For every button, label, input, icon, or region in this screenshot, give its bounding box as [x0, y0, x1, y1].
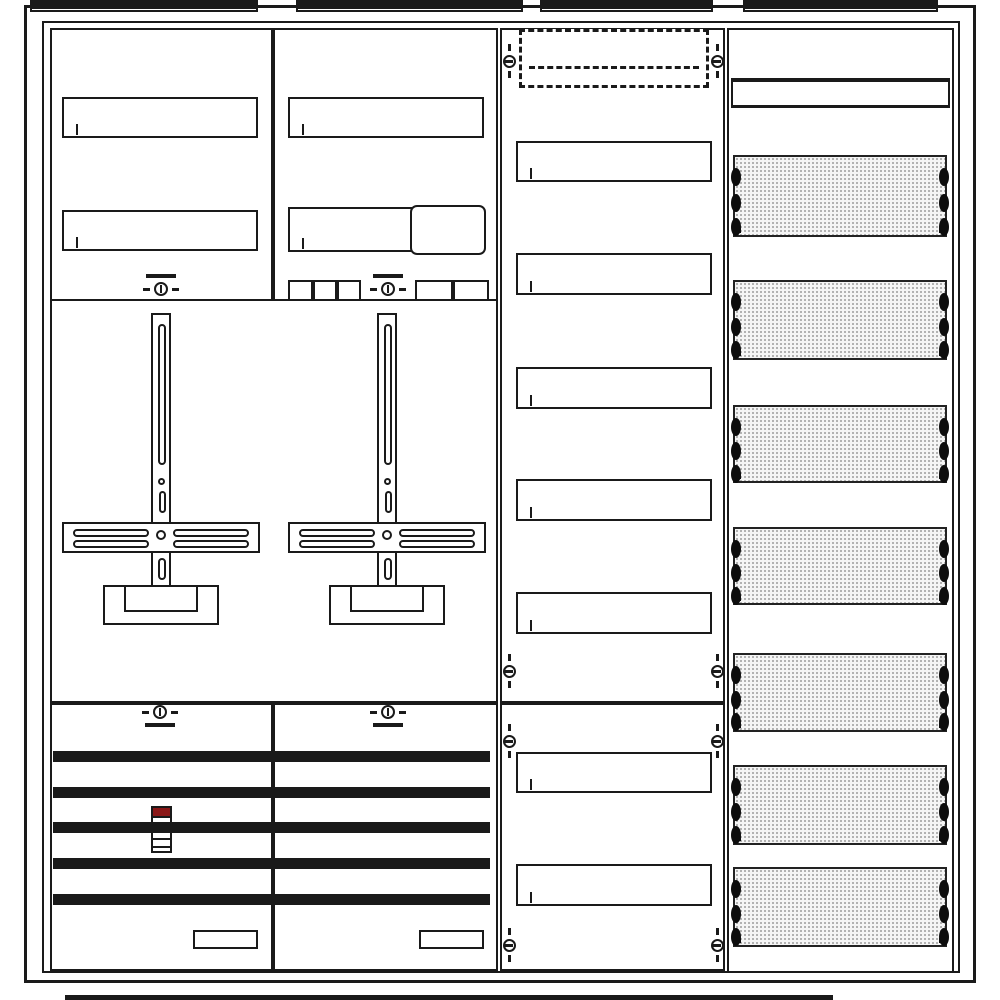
- plate-corner-dot: [939, 351, 944, 356]
- column3-lower-panel: [500, 703, 725, 971]
- screw-dash: [716, 44, 719, 51]
- plate-screw-icon: [939, 778, 949, 796]
- din-rail: [516, 367, 712, 409]
- seal-dash: [399, 711, 406, 714]
- tick-mark: [76, 124, 78, 135]
- busbar: [53, 787, 490, 798]
- plate-corner-dot: [939, 723, 944, 728]
- busbar: [53, 894, 490, 905]
- plate-screw-icon: [731, 293, 741, 311]
- perforated-cover-plate: [733, 155, 947, 237]
- plate-corner-dot: [736, 938, 741, 943]
- perforated-cover-plate: [733, 527, 947, 605]
- seal-bar: [145, 723, 175, 727]
- horizontal-slot: [399, 529, 475, 537]
- busbar: [53, 822, 490, 833]
- din-rail: [516, 592, 712, 634]
- screw-dash: [716, 681, 719, 688]
- plate-corner-dot: [736, 228, 741, 233]
- top-mounting-bracket: [540, 0, 713, 7]
- blank-cover-strip: [731, 78, 950, 108]
- top-mounting-bracket-lip: [743, 7, 938, 12]
- sls-switch-block: [410, 205, 486, 255]
- din-rail: [288, 97, 484, 138]
- screw-dash: [508, 44, 511, 51]
- plate-screw-icon: [731, 194, 741, 212]
- top-mounting-bracket-lip: [540, 7, 713, 12]
- top-mounting-bracket: [296, 0, 523, 7]
- sls-body-line: [153, 838, 170, 840]
- tick-mark: [302, 238, 304, 249]
- din-rail: [288, 207, 428, 252]
- tick-mark: [302, 124, 304, 135]
- plate-screw-icon: [731, 442, 741, 460]
- horizontal-slot: [299, 540, 375, 548]
- plate-corner-dot: [736, 596, 741, 601]
- plate-corner-dot: [939, 836, 944, 841]
- plate-screw-icon: [939, 540, 949, 558]
- seal-dash: [142, 711, 149, 714]
- terminal-strip: [419, 930, 484, 949]
- plate-screw-icon: [939, 293, 949, 311]
- plate-screw-icon: [939, 880, 949, 898]
- din-rail-ticks: [530, 892, 698, 903]
- plate-screw-icon: [731, 928, 741, 946]
- seal-bar: [146, 274, 176, 278]
- plate-screw-icon: [731, 826, 741, 844]
- tick-mark: [530, 395, 532, 406]
- vertical-slot-lower: [158, 558, 166, 580]
- seal-screw-slot: [160, 285, 162, 293]
- plate-screw-icon: [731, 666, 741, 684]
- tick-mark: [530, 507, 532, 518]
- plate-screw-icon: [939, 318, 949, 336]
- meter-cross-foot-inner: [350, 585, 424, 612]
- din-rail-ticks: [302, 124, 470, 135]
- din-rail-ticks: [530, 620, 698, 631]
- top-mounting-bracket: [30, 0, 258, 7]
- din-rail-ticks: [530, 168, 698, 179]
- plate-screw-icon: [731, 564, 741, 582]
- busbar: [53, 858, 490, 869]
- top-mounting-bracket-lip: [296, 7, 523, 12]
- din-rail: [516, 752, 712, 793]
- plate-corner-dot: [939, 938, 944, 943]
- plate-screw-icon: [939, 564, 949, 582]
- terminal-strip: [193, 930, 258, 949]
- seal-dash: [143, 288, 150, 291]
- plate-screw-icon: [731, 540, 741, 558]
- screw-dash: [716, 955, 719, 962]
- seal-screw-slot: [387, 285, 389, 293]
- seal-screw-slot: [159, 708, 161, 716]
- fixing-screw-slot: [713, 944, 721, 947]
- center-hole: [156, 530, 166, 540]
- seal-dash: [370, 711, 377, 714]
- screw-dash: [716, 928, 719, 935]
- plate-screw-icon: [939, 928, 949, 946]
- tick-mark: [530, 779, 532, 790]
- plate-screw-icon: [731, 341, 741, 359]
- screw-dash: [508, 724, 511, 731]
- screw-dash: [508, 681, 511, 688]
- vertical-slot: [158, 324, 166, 465]
- plate-screw-icon: [731, 880, 741, 898]
- plate-screw-icon: [731, 778, 741, 796]
- din-rail-ticks: [302, 238, 414, 249]
- din-rail: [516, 253, 712, 295]
- fixing-screw-slot: [713, 740, 721, 743]
- panel-top-left: [50, 28, 273, 301]
- fuse-box: [313, 280, 337, 301]
- plate-screw-icon: [731, 168, 741, 186]
- perforated-cover-plate: [733, 405, 947, 483]
- meter-cross-foot-inner: [124, 585, 198, 612]
- screw-dash: [716, 71, 719, 78]
- perforated-cover-plate: [733, 765, 947, 845]
- fuse-box: [337, 280, 361, 301]
- plate-screw-icon: [939, 905, 949, 923]
- screw-dash: [508, 955, 511, 962]
- plate-screw-icon: [939, 341, 949, 359]
- plate-screw-icon: [939, 168, 949, 186]
- screw-dash: [508, 654, 511, 661]
- perforated-cover-plate: [733, 280, 947, 360]
- plate-screw-icon: [939, 218, 949, 236]
- din-rail-ticks: [530, 507, 698, 518]
- seal-dash: [370, 288, 377, 291]
- din-rail: [516, 864, 712, 906]
- plate-screw-icon: [939, 418, 949, 436]
- horizontal-slot: [173, 529, 249, 537]
- tick-mark: [530, 281, 532, 292]
- plate-screw-icon: [731, 691, 741, 709]
- din-rail: [516, 479, 712, 521]
- plate-corner-dot: [939, 596, 944, 601]
- perforated-cover-plate: [733, 867, 947, 947]
- plate-corner-dot: [939, 474, 944, 479]
- screw-hole: [158, 478, 165, 485]
- din-rail-ticks: [530, 395, 698, 406]
- seal-dash: [172, 288, 179, 291]
- vertical-slot-small: [159, 491, 166, 513]
- panel-top-right: [273, 28, 498, 301]
- plate-corner-dot: [736, 351, 741, 356]
- reserved-area-midline: [529, 66, 698, 69]
- tick-mark: [530, 892, 532, 903]
- top-mounting-bracket-lip: [30, 7, 258, 12]
- din-rail: [516, 141, 712, 182]
- plate-screw-icon: [939, 803, 949, 821]
- seal-bar: [373, 274, 403, 278]
- fuse-box: [453, 280, 489, 301]
- vertical-slot-small: [385, 491, 392, 513]
- panel-middle-meter-field: [50, 299, 498, 703]
- plate-screw-icon: [731, 905, 741, 923]
- plate-corner-dot: [736, 723, 741, 728]
- screw-dash: [508, 751, 511, 758]
- bottom-mounting-bracket: [65, 995, 833, 1000]
- tick-mark: [76, 237, 78, 248]
- din-rail-ticks: [530, 779, 698, 790]
- horizontal-slot: [173, 540, 249, 548]
- busbar: [53, 751, 490, 762]
- meter-cross-horizontal-bar: [288, 522, 486, 553]
- plate-corner-dot: [736, 836, 741, 841]
- plate-screw-icon: [939, 194, 949, 212]
- tick-mark: [530, 168, 532, 179]
- plate-screw-icon: [939, 826, 949, 844]
- fixing-screw-slot: [505, 670, 513, 673]
- plate-corner-dot: [736, 474, 741, 479]
- plate-screw-icon: [939, 691, 949, 709]
- seal-dash: [171, 711, 178, 714]
- reserved-area-dashed: [519, 29, 709, 88]
- fixing-screw-slot: [505, 740, 513, 743]
- center-hole: [382, 530, 392, 540]
- plate-screw-icon: [939, 666, 949, 684]
- horizontal-slot: [299, 529, 375, 537]
- din-rail-ticks: [530, 281, 698, 292]
- meter-cross-horizontal-bar: [62, 522, 260, 553]
- din-rail: [62, 210, 258, 251]
- fuse-box: [288, 280, 313, 301]
- sls-body-line: [153, 846, 170, 848]
- plate-screw-icon: [939, 442, 949, 460]
- plate-corner-dot: [939, 228, 944, 233]
- seal-bar: [373, 723, 403, 727]
- top-mounting-bracket: [743, 0, 938, 7]
- plate-screw-icon: [731, 713, 741, 731]
- plate-screw-icon: [731, 318, 741, 336]
- seal-dash: [399, 288, 406, 291]
- plate-screw-icon: [731, 418, 741, 436]
- vertical-slot: [384, 324, 392, 465]
- din-rail: [62, 97, 258, 138]
- plate-screw-icon: [731, 803, 741, 821]
- fixing-screw-slot: [713, 670, 721, 673]
- din-rail-ticks: [76, 124, 244, 135]
- horizontal-slot: [73, 540, 149, 548]
- meter-cabinet-diagram: [0, 0, 1000, 1000]
- plate-screw-icon: [939, 713, 949, 731]
- fixing-screw-slot: [713, 60, 721, 63]
- seal-screw-slot: [387, 708, 389, 716]
- screw-dash: [716, 751, 719, 758]
- vertical-slot-lower: [384, 558, 392, 580]
- sls-red-cap: [153, 808, 170, 818]
- screw-dash: [716, 724, 719, 731]
- fuse-box: [415, 280, 453, 301]
- horizontal-slot: [399, 540, 475, 548]
- fixing-screw-slot: [505, 944, 513, 947]
- screw-hole: [384, 478, 391, 485]
- perforated-cover-plate: [733, 653, 947, 732]
- fixing-screw-slot: [505, 60, 513, 63]
- screw-dash: [716, 654, 719, 661]
- din-rail-ticks: [76, 237, 244, 248]
- screw-dash: [508, 71, 511, 78]
- screw-dash: [508, 928, 511, 935]
- tick-mark: [530, 620, 532, 631]
- plate-screw-icon: [731, 218, 741, 236]
- horizontal-slot: [73, 529, 149, 537]
